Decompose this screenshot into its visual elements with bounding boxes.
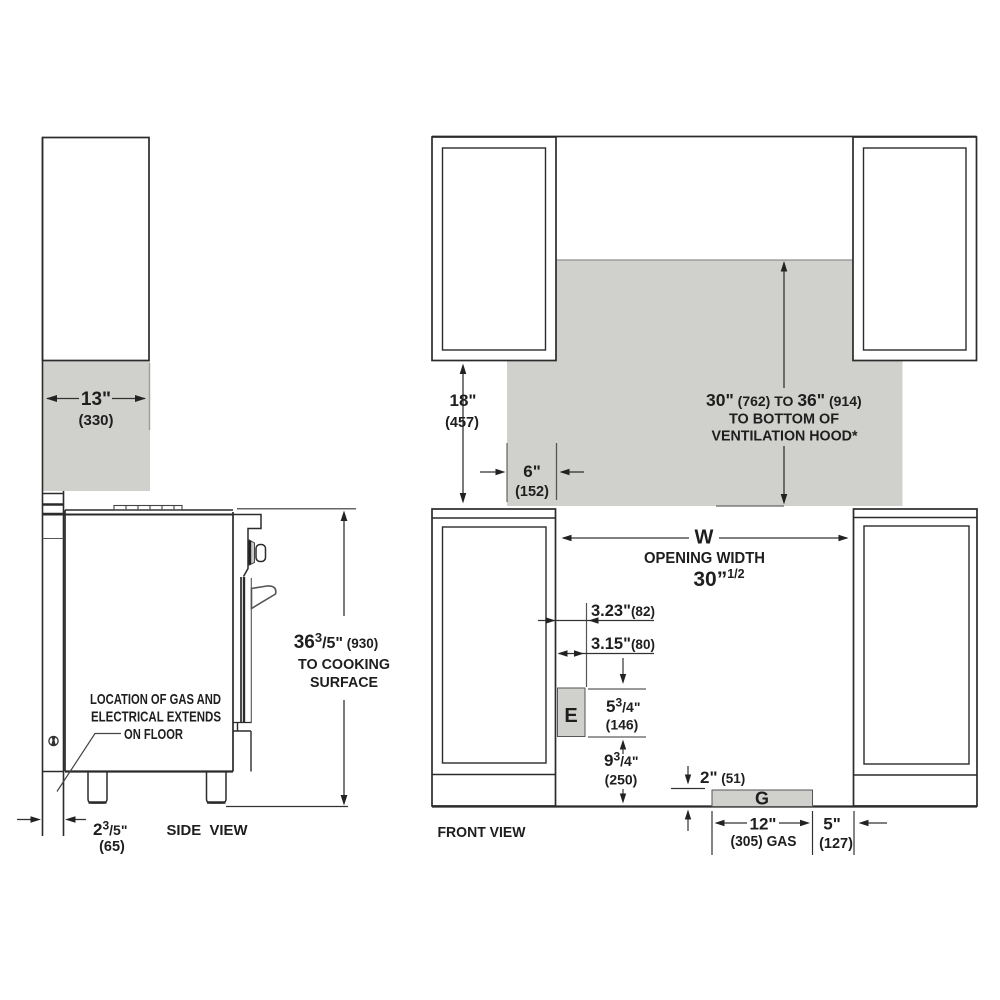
svg-text:ON FLOOR: ON FLOOR [124,726,183,743]
svg-text:(152): (152) [515,484,549,500]
svg-text:3.23"(82): 3.23"(82) [591,602,655,620]
svg-text:18": 18" [450,391,477,410]
svg-text:ELECTRICAL EXTENDS: ELECTRICAL EXTENDS [91,709,221,726]
svg-text:(250): (250) [605,772,638,788]
svg-text:SIDE VIEW: SIDE VIEW [167,822,249,839]
svg-text:E: E [564,705,577,727]
svg-text:LOCATION OF GAS AND: LOCATION OF GAS AND [90,691,221,708]
svg-text:W: W [695,527,714,549]
svg-text:(65): (65) [99,839,125,855]
svg-text:G: G [755,789,769,809]
svg-text:VENTILATION HOOD*: VENTILATION HOOD* [712,428,858,445]
svg-text:FRONT VIEW: FRONT VIEW [438,824,527,841]
svg-text:TO BOTTOM OF: TO BOTTOM OF [729,411,839,428]
svg-text:2" (51): 2" (51) [700,768,745,787]
svg-text:3.15"(80): 3.15"(80) [591,635,655,653]
svg-text:5": 5" [823,815,841,834]
svg-text:TO COOKING: TO COOKING [298,656,390,673]
svg-text:(127): (127) [819,836,853,852]
svg-text:(330): (330) [78,412,113,429]
svg-text:23/5": 23/5" [93,819,127,840]
svg-text:OPENING WIDTH: OPENING WIDTH [644,550,765,567]
svg-text:12": 12" [750,815,777,834]
svg-text:30" (762) TO 36" (914): 30" (762) TO 36" (914) [706,390,862,410]
svg-text:53/4": 53/4" [606,696,640,717]
svg-text:(305) GAS: (305) GAS [731,834,797,850]
svg-text:(457): (457) [445,415,479,431]
svg-text:13": 13" [81,389,111,410]
svg-text:SURFACE: SURFACE [310,674,378,691]
svg-text:93/4": 93/4" [604,750,638,771]
svg-text:(146): (146) [606,717,639,733]
svg-text:6": 6" [523,462,541,481]
